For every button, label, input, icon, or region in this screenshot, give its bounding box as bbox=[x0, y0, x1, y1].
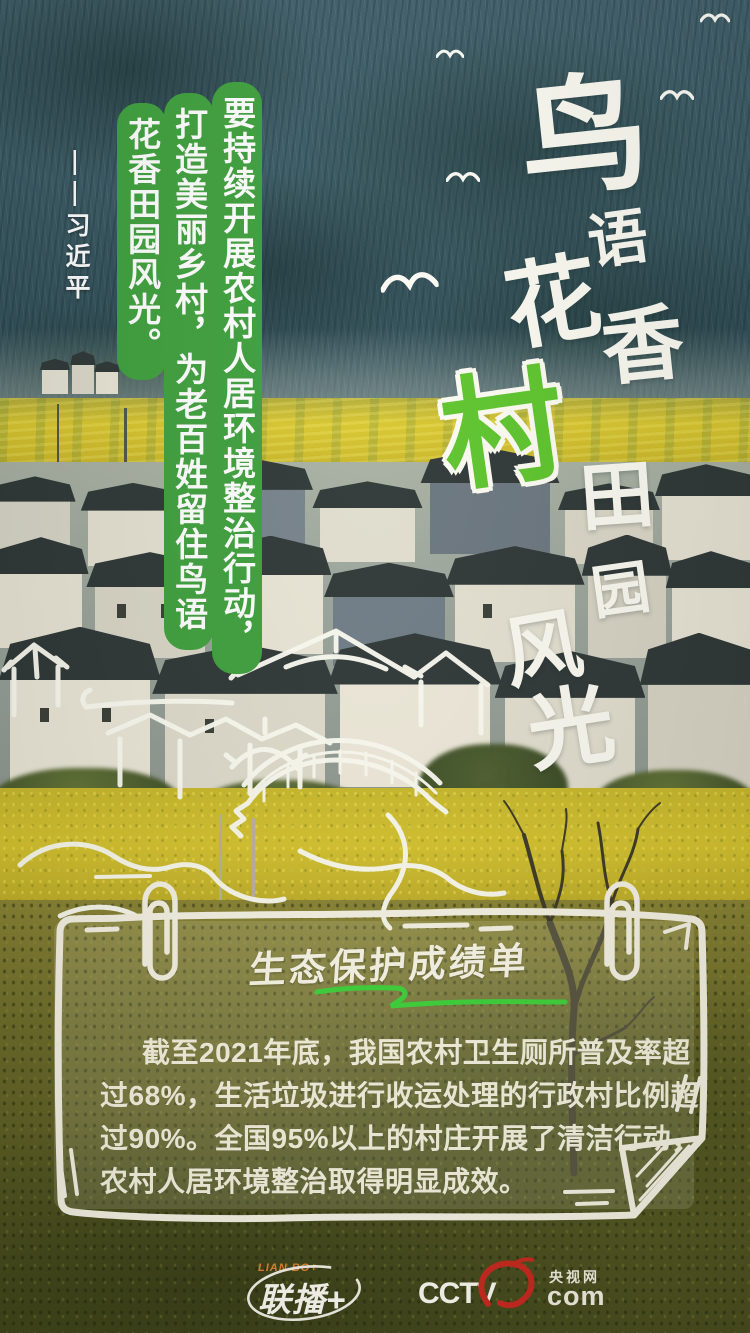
headline-char: 田 bbox=[578, 458, 657, 537]
house-shape bbox=[42, 366, 68, 394]
bird-icon bbox=[436, 46, 464, 60]
roof-shape bbox=[0, 476, 76, 501]
house-shape bbox=[72, 360, 94, 394]
house-shape bbox=[662, 484, 750, 560]
cctv-red-swoosh bbox=[466, 1254, 552, 1314]
quote-column-2: 打造美丽乡村，为老百姓留住鸟语 bbox=[164, 93, 214, 650]
quote-column-1: 要持续开展农村人居环境整治行动， bbox=[212, 82, 262, 674]
roof-shape bbox=[324, 563, 454, 597]
card-body-line: 过90%。全国95%以上的村庄开展了清洁行动， bbox=[100, 1117, 666, 1160]
house-shape bbox=[96, 368, 118, 394]
roof-shape bbox=[94, 361, 120, 372]
roof-shape bbox=[312, 481, 422, 508]
bird-icon bbox=[446, 168, 480, 184]
paperclip-icon bbox=[145, 884, 175, 978]
card-body-line: 农村人居环境整治取得明显成效。 bbox=[100, 1160, 666, 1203]
headline-char: 光 bbox=[522, 680, 620, 778]
roof-shape bbox=[655, 464, 750, 496]
bird-icon bbox=[660, 86, 694, 102]
headline-char: 香 bbox=[598, 302, 688, 392]
headline-char: 鸟 bbox=[514, 68, 655, 209]
house-shape bbox=[320, 498, 415, 562]
headline-char: 花 bbox=[499, 249, 608, 358]
distant-house-cluster bbox=[40, 352, 120, 400]
title-underline bbox=[317, 988, 565, 1006]
bird-icon bbox=[700, 10, 730, 24]
quote-attribution: ——习近平 bbox=[58, 150, 94, 305]
headline-char: 园 bbox=[588, 558, 654, 624]
roof-shape bbox=[70, 351, 96, 365]
card-body-line: 截至2021年底，我国农村卫生厕所普及率超 bbox=[100, 1031, 666, 1074]
headline-char: 语 bbox=[584, 206, 652, 274]
paperclip-icon bbox=[607, 884, 637, 978]
cctv-domain-label: com bbox=[547, 1281, 606, 1312]
headline-char-village: 村 bbox=[434, 362, 572, 500]
card-body: 截至2021年底，我国农村卫生厕所普及率超 过68%，生活垃圾进行收运处理的行政… bbox=[100, 1031, 666, 1203]
roof-shape bbox=[40, 359, 70, 371]
poster-canvas: 鸟 语 花 香 村 田 园 风 光 要持续开展农村人居环境整治行动， 打造美丽乡… bbox=[0, 0, 750, 1333]
quote-column-3: 花香田园风光。 bbox=[117, 103, 167, 380]
card-body-line: 过68%，生活垃圾进行收运处理的行政村比例超 bbox=[100, 1074, 666, 1117]
lianbo-circle-swoosh bbox=[242, 1260, 366, 1324]
